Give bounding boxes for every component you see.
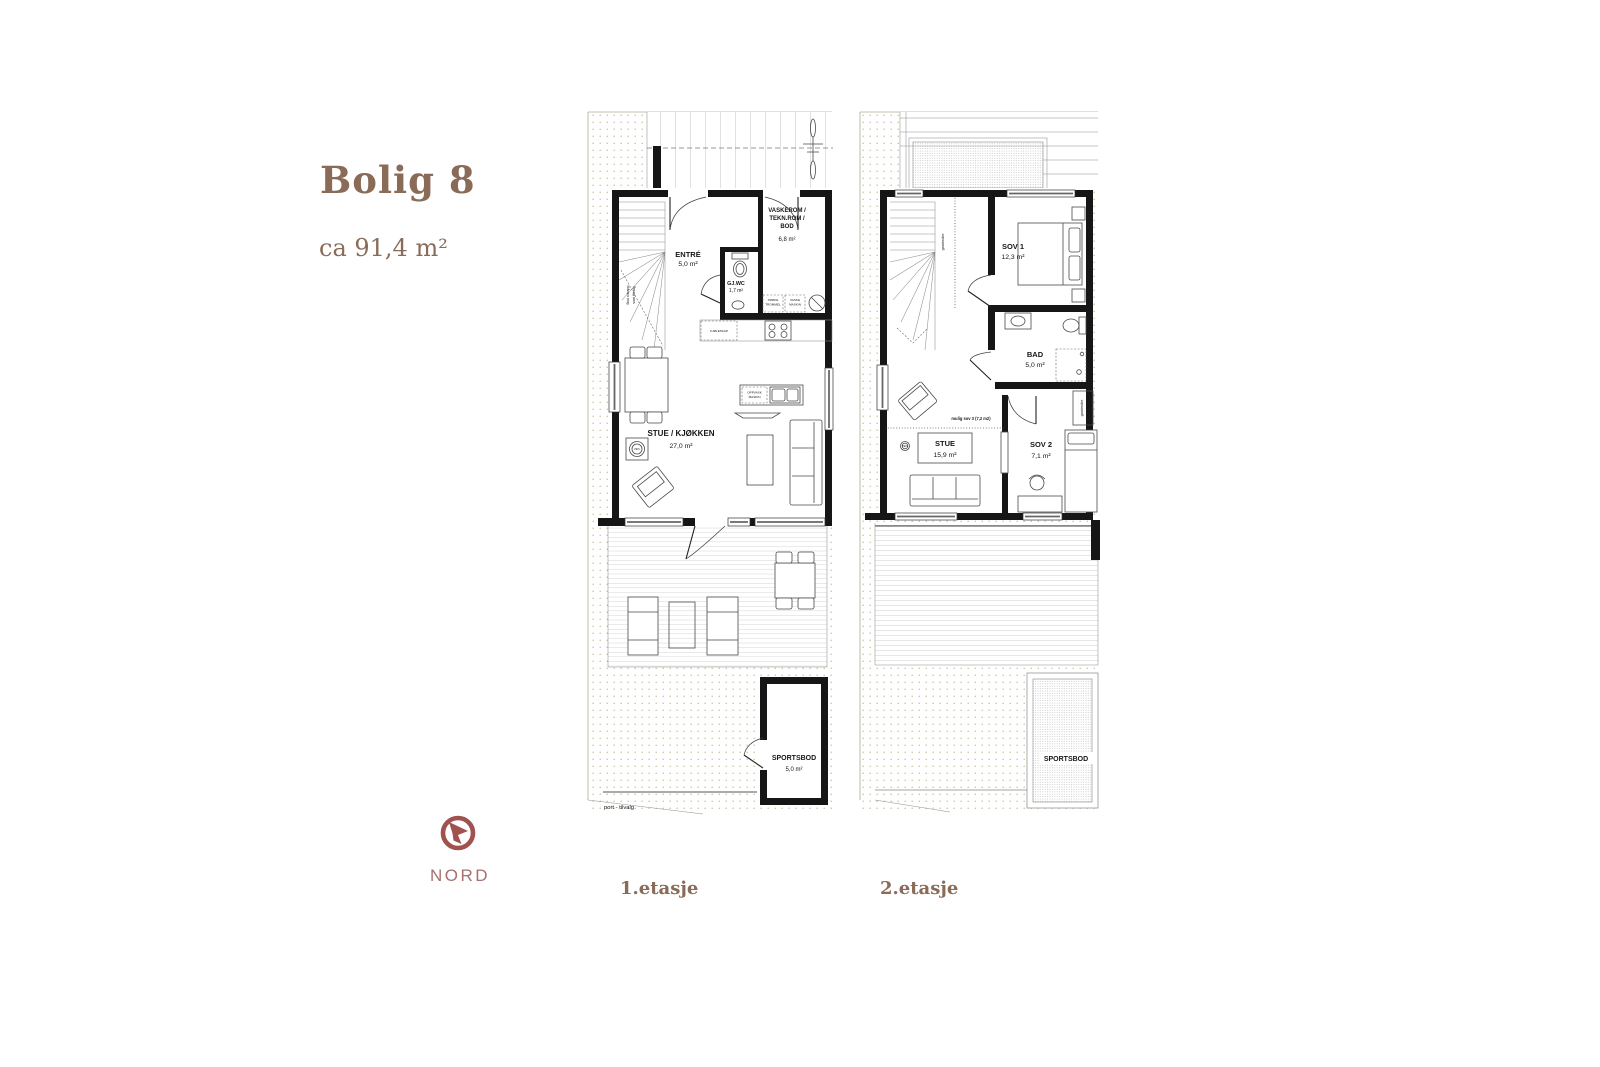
svg-text:port - tilvalg: port - tilvalg [604, 805, 634, 811]
svg-text:1,7 m²: 1,7 m² [729, 288, 744, 294]
svg-text:SPORTSBOD: SPORTSBOD [1044, 756, 1088, 763]
svg-text:MASKIN: MASKIN [789, 303, 801, 307]
svg-text:5,0 m²: 5,0 m² [1025, 362, 1045, 369]
svg-text:ENTRÉ: ENTRÉ [675, 250, 700, 259]
floor-plan-1-etasje: Bod u/trapp som tilvalg [585, 100, 835, 815]
svg-text:som tilvalg: som tilvalg [632, 286, 636, 303]
svg-text:garderobe: garderobe [1080, 400, 1084, 417]
svg-text:6,8 m²: 6,8 m² [778, 237, 795, 243]
svg-text:5,0 m²: 5,0 m² [678, 261, 698, 268]
possible-room-label: mulig sov 3 (7,2 m2) [951, 416, 991, 421]
svg-text:PEIS: PEIS [634, 449, 640, 451]
svg-text:Bod u/trapp: Bod u/trapp [626, 285, 630, 304]
wardrobe-label-1: garderobe [941, 234, 945, 251]
patio-table [775, 563, 815, 598]
svg-text:BOD: BOD [780, 224, 794, 230]
svg-text:PEIS: PEIS [902, 446, 908, 448]
floor1-caption: 1.etasje [620, 878, 698, 899]
svg-text:MASKIN: MASKIN [749, 395, 761, 399]
svg-text:GJ.WC: GJ.WC [727, 281, 745, 287]
entrance-roof [900, 112, 1098, 190]
north-arrow-icon [435, 810, 481, 856]
svg-text:15,9 m²: 15,9 m² [933, 452, 957, 459]
pocket-door [1001, 432, 1008, 473]
floor-plan-2-etasje: garderobe [855, 100, 1100, 815]
svg-text:STUE / KJØKKEN: STUE / KJØKKEN [647, 429, 714, 438]
floorplan-sheet: Bolig 8 ca 91,4 m² NORD [0, 0, 1600, 1067]
double-bed [1018, 223, 1082, 285]
compass-label: NORD [430, 866, 486, 886]
svg-text:BAD: BAD [1027, 350, 1044, 359]
svg-text:12,3 m²: 12,3 m² [1001, 254, 1025, 261]
dining-table [625, 358, 668, 412]
svg-text:KJØLESKAP: KJØLESKAP [710, 329, 728, 333]
svg-text:TROMMEL: TROMMEL [765, 303, 781, 307]
sun-lounger [707, 597, 738, 655]
svg-text:TEKN.ROM /: TEKN.ROM / [769, 216, 805, 222]
svg-text:OPPVASK: OPPVASK [747, 391, 762, 395]
svg-text:VASKEROM /: VASKEROM / [768, 208, 806, 214]
kitchen-island: OPPVASK MASKIN [740, 385, 803, 405]
svg-text:7,1 m²: 7,1 m² [1031, 453, 1051, 460]
sofa [790, 420, 822, 505]
svg-text:5,0 m²: 5,0 m² [785, 767, 802, 773]
chimney-icon: PEIS [901, 442, 910, 451]
svg-text:SOV 1: SOV 1 [1002, 242, 1024, 251]
svg-text:27,0 m²: 27,0 m² [669, 443, 693, 450]
svg-text:SPORTSBOD: SPORTSBOD [772, 755, 816, 762]
page-title: Bolig 8 [320, 158, 476, 202]
svg-text:VASKE: VASKE [790, 298, 800, 302]
single-bed [1065, 430, 1097, 512]
desk [1018, 496, 1062, 512]
compass: NORD [430, 810, 486, 886]
sun-lounger [628, 597, 658, 655]
svg-text:TØRKE: TØRKE [768, 298, 779, 302]
svg-text:SOV 2: SOV 2 [1030, 440, 1052, 449]
sofa-2 [910, 475, 980, 506]
sportsbod-2: SPORTSBOD [1027, 673, 1098, 808]
entrance-walkway [647, 112, 833, 190]
floor2-caption: 2.etasje [880, 878, 958, 899]
terrace-roof [875, 523, 1098, 665]
svg-text:STUE: STUE [935, 439, 955, 448]
total-area-label: ca 91,4 m² [319, 234, 448, 262]
